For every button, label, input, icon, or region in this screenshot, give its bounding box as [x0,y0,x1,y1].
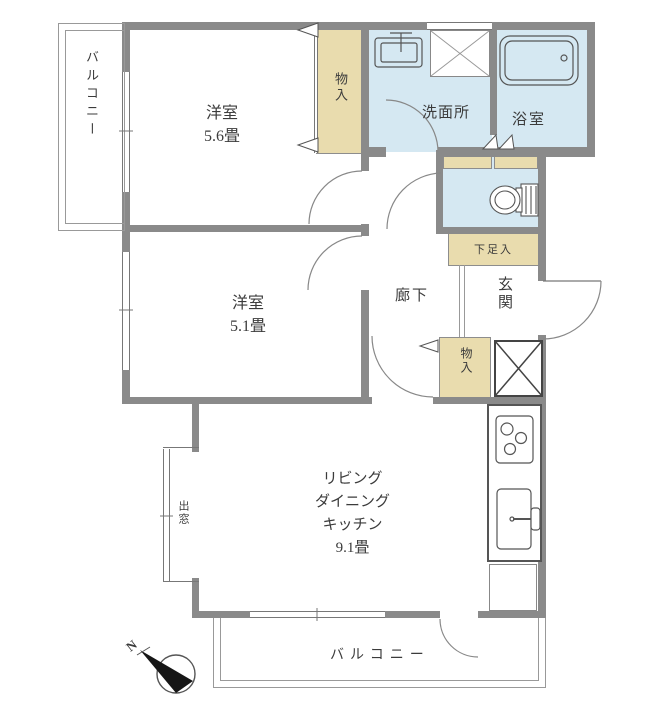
room1-label: 洋室 5.6畳 [157,99,287,151]
room1-size: 5.6畳 [204,125,240,148]
room2-label: 洋室 5.1畳 [183,289,313,341]
kitchen-sink-icon [497,489,540,549]
door-arc-toilet [387,173,441,229]
entrance-label: 玄関 [494,276,515,312]
balcony-bottom-label: バルコニー [330,644,430,664]
ldk-line3: キッチン [322,514,382,537]
ldk-label: リビング ダイニング キッチン 9.1畳 [280,467,425,561]
room2-size: 5.1畳 [230,315,266,338]
pipe-shaft-x [495,341,542,396]
room2-name: 洋室 [232,292,264,315]
storage-top-label: 物入 [331,72,350,104]
ldk-size: 9.1畳 [336,537,370,560]
balcony-left-label: バルコニー [82,50,101,140]
sink-icon [375,33,422,67]
washing-machine-x [431,31,489,76]
ldk-line1: リビング [322,468,382,491]
room1-name: 洋室 [206,102,238,125]
stove-icon [496,416,533,463]
folding-door-bath-icon [483,135,514,149]
door-arc-balcony [440,619,478,657]
toilet-icon [490,184,538,216]
shoe-cabinet-label: 下足入 [448,234,539,264]
floor-plan: バルコニー 洋室 5.6畳 洋室 5.1畳 物入 洗面所 浴室 下足入 玄関 廊… [0,0,651,709]
ldk-line2: ダイニング [315,491,390,514]
storage-lower-label: 物入 [458,347,475,375]
door-arc-entrance [543,281,601,339]
bay-window-label: 出窓 [175,500,191,526]
door-arc-room1 [309,171,362,224]
bathtub-icon [500,36,578,85]
bathroom-label: 浴室 [512,108,546,129]
compass-icon [137,647,195,693]
washroom-label: 洗面所 [422,101,470,122]
hallway-label: 廊下 [395,284,429,305]
door-arc-room2 [308,236,362,290]
